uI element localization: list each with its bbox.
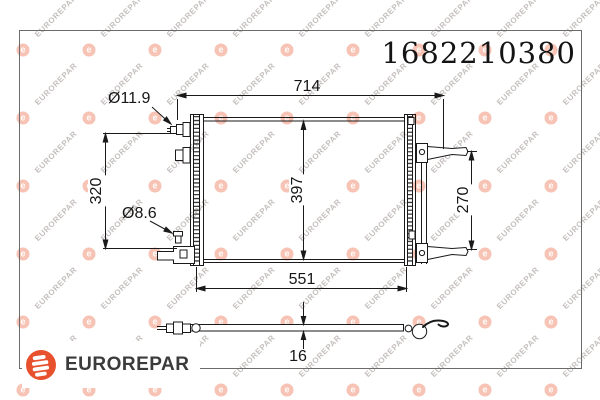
bottom-left-bracket	[158, 247, 195, 264]
inlet-fitting	[167, 123, 190, 137]
part-number: 1682210380	[381, 36, 576, 70]
stylized-e-icon	[26, 350, 56, 380]
dim-bracket-pitch-label: 270	[455, 185, 473, 216]
top-right-bracket	[417, 144, 469, 163]
brand-logo-icon	[26, 350, 56, 380]
dimension-lines	[103, 93, 477, 349]
catalog-drawing-page: eEUROREPAReEUROREPAReEUROREPAReEUROREPAR…	[0, 0, 600, 400]
outlet-fitting	[174, 232, 183, 244]
dim-core-height-label: 397	[289, 175, 307, 206]
brand-name: EUROREPAR	[65, 354, 190, 376]
dim-outlet-diameter-label: Ø8.6	[122, 205, 157, 223]
left-clip	[176, 148, 191, 164]
dim-left-height-label: 320	[88, 176, 106, 207]
dim-depth-label: 16	[289, 348, 307, 366]
bottom-right-bracket	[417, 244, 469, 263]
dim-overall-width-label: 714	[294, 78, 321, 96]
dim-core-width-label: 551	[289, 271, 316, 289]
front-view	[158, 115, 469, 266]
brand-logo-block: EUROREPAR	[22, 341, 200, 388]
dim-inlet-diameter-label: Ø11.9	[108, 90, 150, 108]
